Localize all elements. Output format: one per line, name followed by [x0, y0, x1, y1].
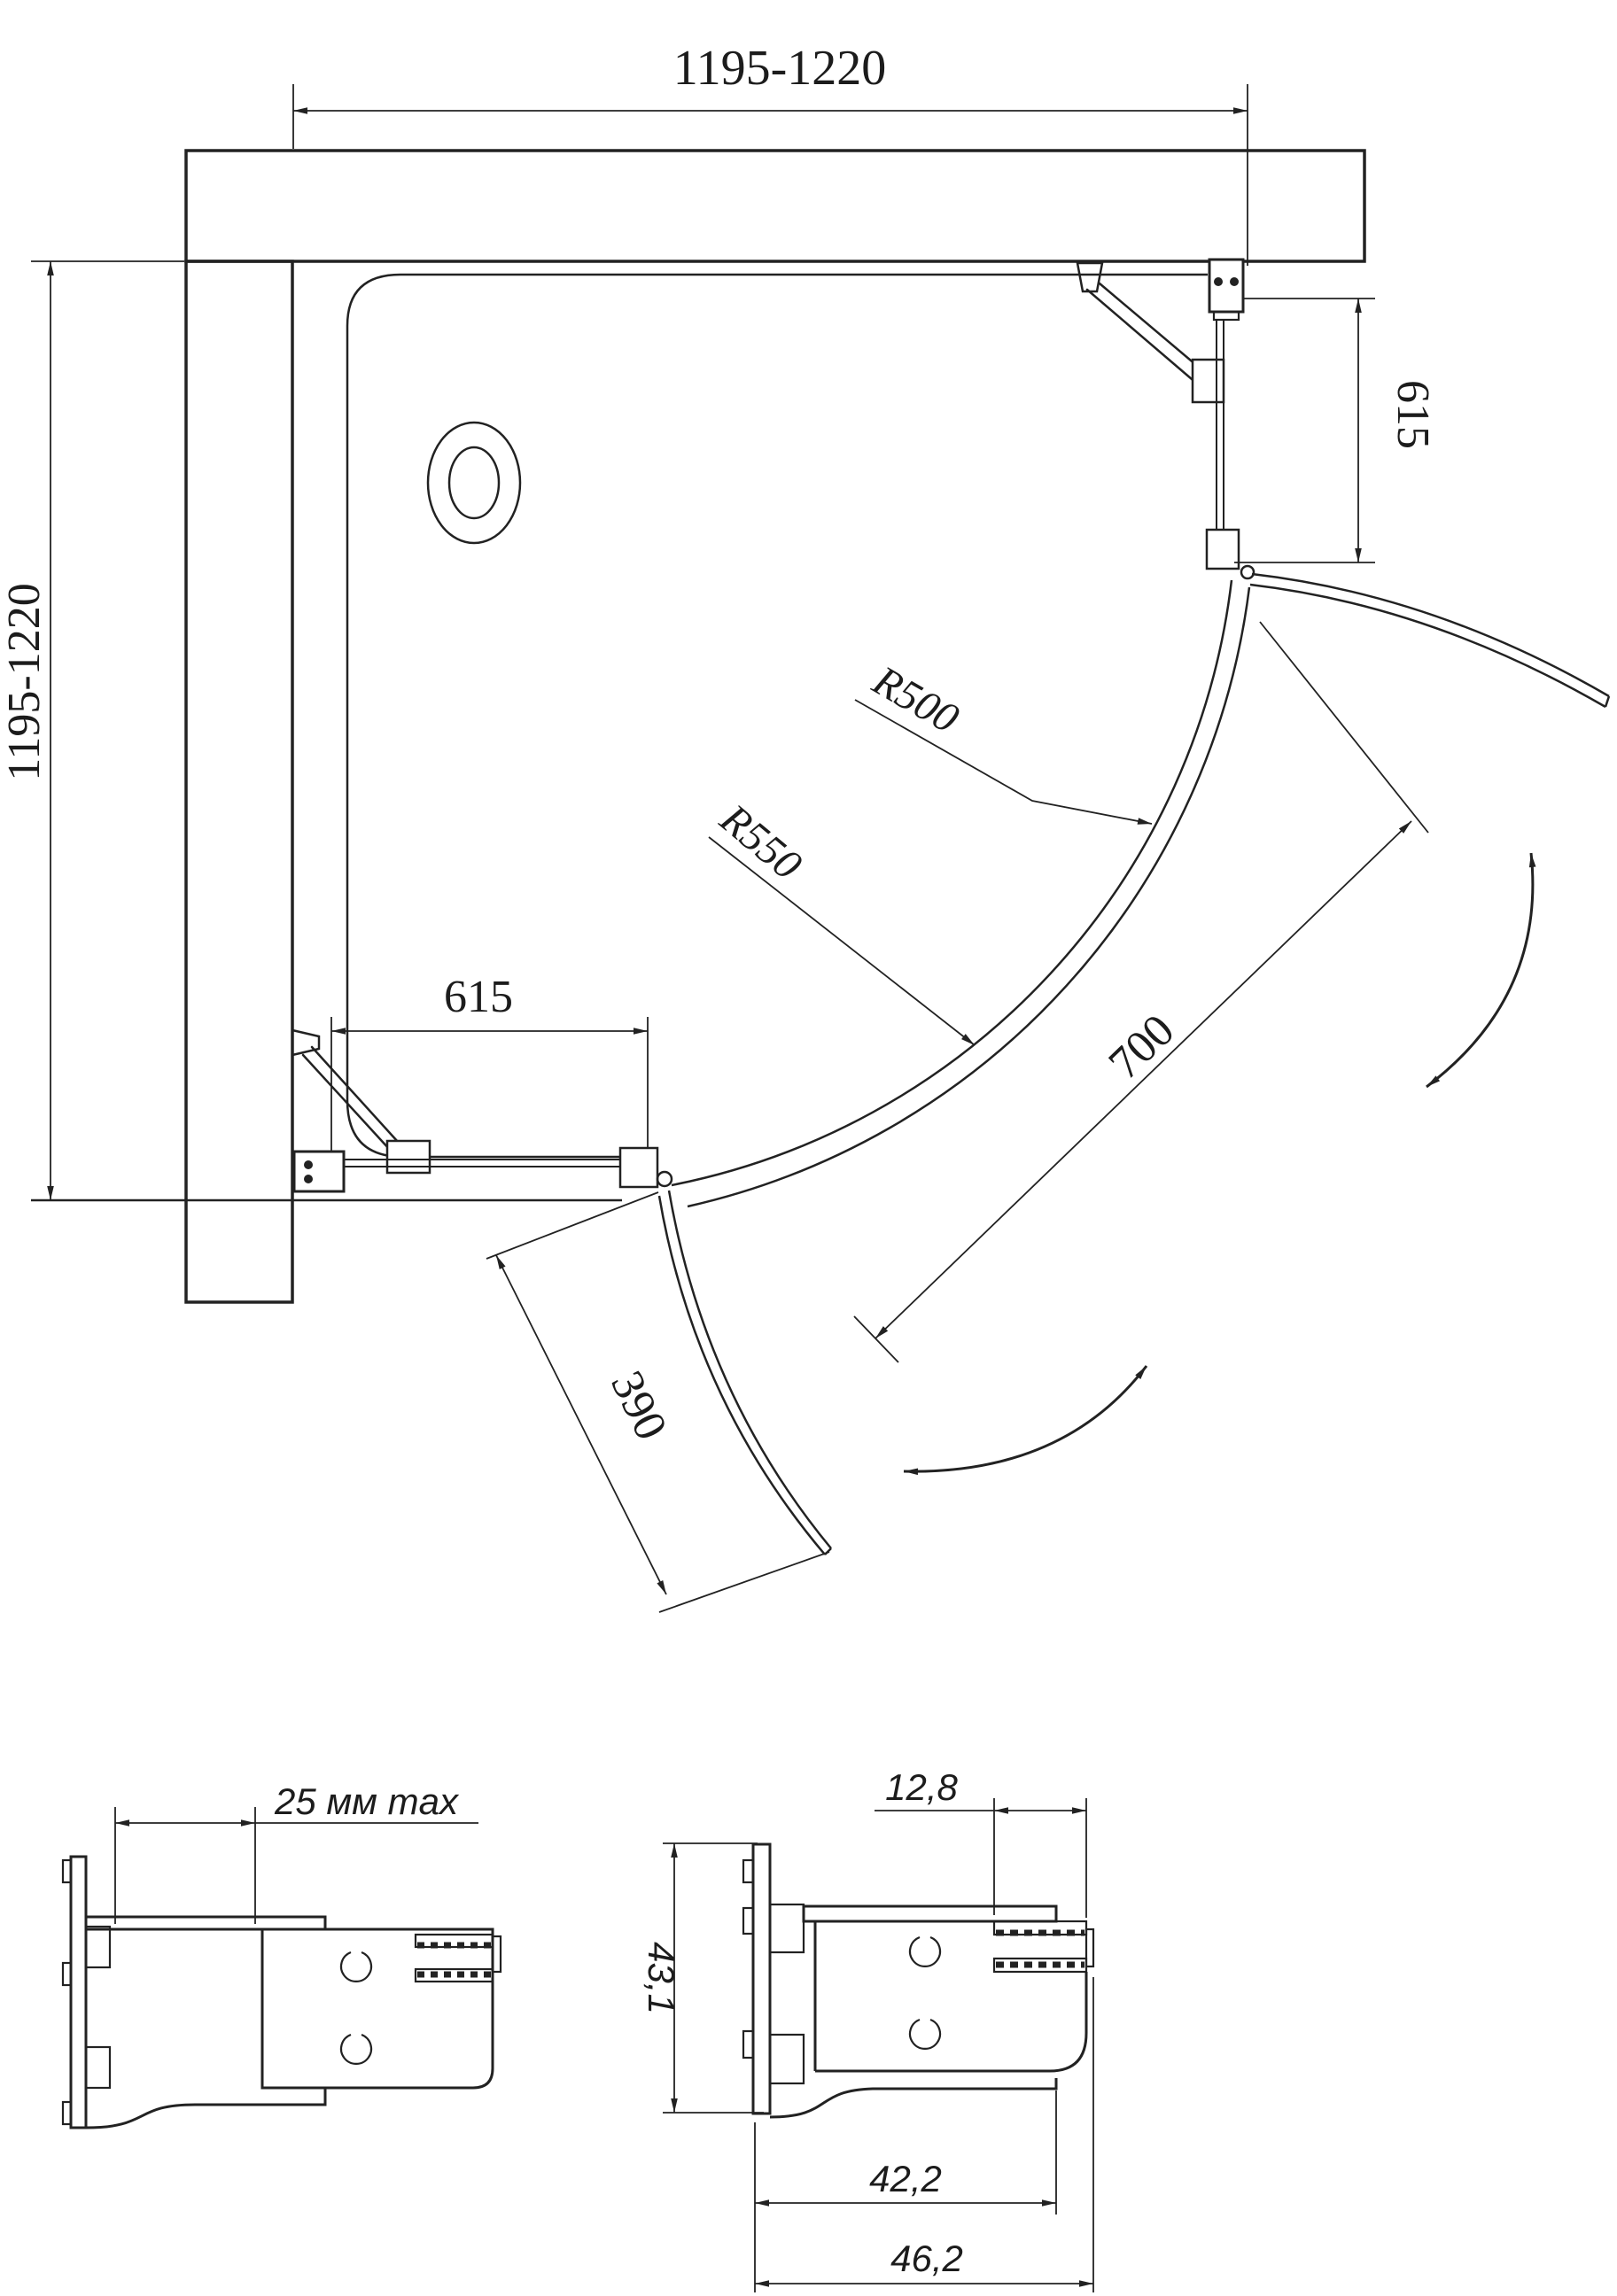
dim-profile-width-overall: 46,2 [755, 1977, 1093, 2292]
seal-lip [1086, 1929, 1093, 1966]
dim-profile-width-inner-label: 42,2 [869, 2158, 942, 2199]
glass-channel-combs [416, 1935, 501, 1982]
wall-profile-strip [753, 1844, 770, 2114]
screw-boss-icon [341, 2035, 371, 2064]
wall-profile-strip [71, 1857, 86, 2128]
dim-door-390: 390 [486, 1192, 829, 1612]
frame-main-box [262, 1929, 493, 2088]
profile-nub [743, 2031, 753, 2058]
corner-post-bottom-left [294, 1152, 344, 1191]
dim-glass-channel: 12,8 [875, 1766, 1086, 1918]
extension-line [659, 1552, 829, 1612]
frame-bottom-flange [86, 2088, 325, 2128]
drain-outer-ring [428, 423, 520, 543]
screw-boss-icon [910, 1937, 940, 1966]
dim-wall-adjustment-label: 25 мм max [274, 1780, 460, 1822]
dim-profile-depth: 43,1 [641, 1843, 764, 2113]
profile-tab [770, 1904, 804, 1952]
frame-top-flange [86, 1917, 325, 1929]
profile-tab [86, 2047, 110, 2088]
door-open-right [1250, 574, 1609, 707]
door-leaf-right-edge [1605, 696, 1609, 707]
door-track-arc-inner [672, 580, 1232, 1185]
corner-post-top-right [1209, 260, 1243, 312]
radius-label-r500: R500 [855, 656, 1152, 824]
leader-line [855, 700, 1152, 824]
profile-detail-left: 25 мм max [63, 1780, 501, 2128]
door-track-arc-outer [688, 587, 1249, 1206]
dim-door-leaf-label: 390 [601, 1363, 676, 1447]
dim-top-width: 1195-1220 [293, 41, 1248, 266]
door-pivot-right [1241, 566, 1254, 578]
swing-arrow-right [1427, 853, 1533, 1087]
pivot-bracket-right [1207, 530, 1239, 569]
screw-icon [304, 1160, 313, 1169]
comb-strip [416, 1969, 493, 1982]
leader-line [709, 837, 975, 1045]
technical-drawing: 1195-1220 1195-1220 615 615 700 [0, 0, 1617, 2296]
glass-clamp-top [1193, 360, 1224, 402]
door-open-bottom [659, 1191, 831, 1555]
drain-inner-ring [449, 447, 499, 518]
pivot-bracket-bottom [620, 1148, 657, 1187]
door-pivot-bottom [657, 1172, 672, 1186]
dim-profile-width-overall-label: 46,2 [890, 2238, 963, 2279]
profile-tab [86, 1927, 110, 1967]
profile-tab [770, 2035, 804, 2083]
wall-bracket-top [1077, 263, 1102, 291]
corner-unit-bottom-left [292, 1030, 672, 1191]
plan-view: 1195-1220 1195-1220 615 615 700 [0, 41, 1609, 1612]
extension-line [1260, 622, 1428, 833]
screw-boss-icon [341, 1952, 371, 1982]
support-bar-top-2 [1100, 283, 1208, 375]
frame-top-flange [804, 1906, 1056, 1921]
dim-right-panel-label: 615 [1388, 380, 1438, 449]
support-bar-bottom [312, 1047, 398, 1142]
extension-line [486, 1192, 658, 1259]
dim-left-depth: 1195-1220 [0, 261, 184, 1200]
radius-outer-label: R550 [711, 795, 810, 888]
door-leaf-bottom-inner [659, 1196, 825, 1555]
dim-opening-label: 700 [1100, 1005, 1185, 1090]
glass-clamp-bottom [387, 1141, 430, 1173]
shower-tray-outline [347, 275, 1208, 1157]
dim-wall-adjustment: 25 мм max [115, 1780, 478, 1924]
profile-nub [743, 1908, 753, 1934]
comb-strip [416, 1935, 493, 1947]
radius-inner-label: R500 [865, 656, 967, 742]
screw-boss-icon [910, 2020, 940, 2049]
dim-profile-depth-label: 43,1 [641, 1942, 682, 2014]
profile-nub [743, 1860, 753, 1882]
door-track [672, 580, 1249, 1206]
screw-icon [304, 1175, 313, 1183]
frame-box-bottom-right [815, 1972, 1086, 2071]
dim-top-width-label: 1195-1220 [673, 41, 887, 96]
door-leaf-right-inner [1250, 585, 1605, 707]
dim-glass-channel-label: 12,8 [885, 1766, 958, 1808]
dim-bottom-panel-label: 615 [444, 972, 513, 1022]
swing-arrow-bottom [904, 1366, 1147, 1471]
frame-bottom-flange [770, 2078, 1056, 2117]
screw-icon [1214, 277, 1223, 286]
radius-label-r550: R550 [709, 795, 975, 1045]
support-bar-top [1087, 290, 1198, 384]
drain [428, 423, 520, 543]
corner-unit-top-right [1077, 260, 1254, 578]
screw-icon [1230, 277, 1239, 286]
wall-section-top [186, 151, 1364, 261]
profile-detail-right: 12,8 43,1 42,2 46,2 [641, 1766, 1093, 2292]
door-leaf-bottom-outer [669, 1191, 831, 1548]
drawing-page: 1195-1220 1195-1220 615 615 700 [0, 0, 1617, 2296]
glass-channel-combs [994, 1921, 1093, 1972]
dim-bottom-panel: 615 [331, 972, 648, 1152]
dim-right-panel: 615 [1234, 299, 1438, 562]
dim-left-depth-label: 1195-1220 [0, 583, 50, 780]
wall-section-left [186, 261, 292, 1302]
